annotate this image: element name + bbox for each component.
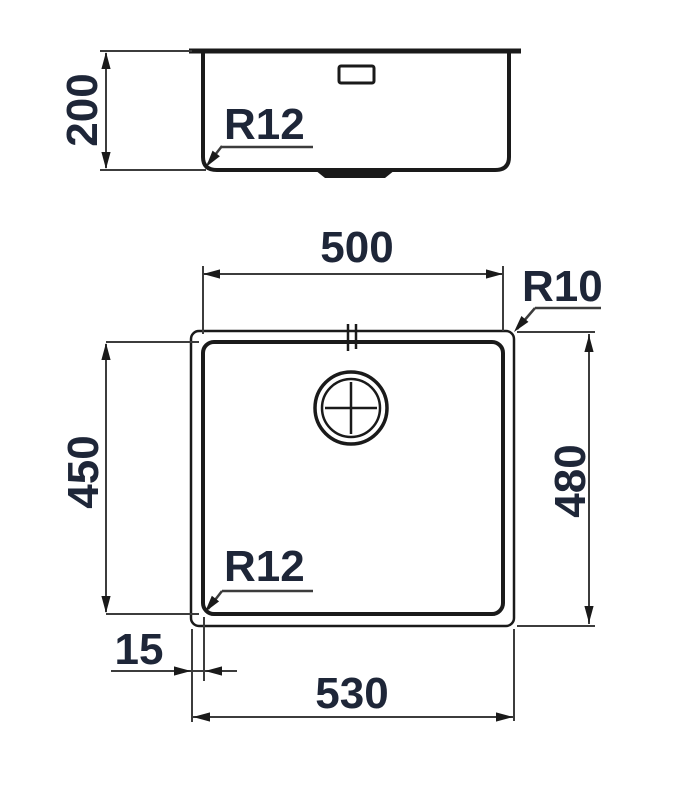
dim-arrow-icon	[203, 269, 220, 278]
dim-arrow-icon	[101, 52, 110, 69]
dim-arrow-icon	[584, 335, 593, 352]
plan-inner-height-label: 450	[59, 435, 108, 508]
plan-rim-radius-label: R10	[522, 262, 603, 311]
plan-inner-width-label: 500	[320, 223, 393, 272]
plan-bowl-radius-label: R12	[224, 542, 305, 591]
plan-outer-height-label: 480	[546, 444, 595, 517]
dim-arrow-icon	[101, 343, 110, 360]
plan-rim-offset-label: 15	[115, 625, 164, 674]
dim-arrow-icon	[584, 606, 593, 623]
dim-arrow-icon	[486, 269, 503, 278]
drawing-canvas: 200 R12	[0, 0, 678, 800]
dim-arrow-icon	[174, 666, 191, 675]
side-bowl-radius-label: R12	[224, 100, 305, 149]
dim-arrow-icon	[205, 666, 222, 675]
plan-view-dimensions	[101, 266, 601, 722]
plan-outer-width-label: 530	[315, 669, 388, 718]
dim-arrow-icon	[101, 152, 110, 169]
overflow-hole-icon	[339, 66, 374, 83]
dim-arrow-icon	[101, 596, 110, 613]
dim-arrow-icon	[193, 712, 210, 721]
dim-arrow-icon	[496, 712, 513, 721]
sink-technical-drawing: 200 R12	[0, 0, 678, 800]
side-height-label: 200	[58, 73, 107, 146]
drain-stub-icon	[315, 170, 395, 178]
